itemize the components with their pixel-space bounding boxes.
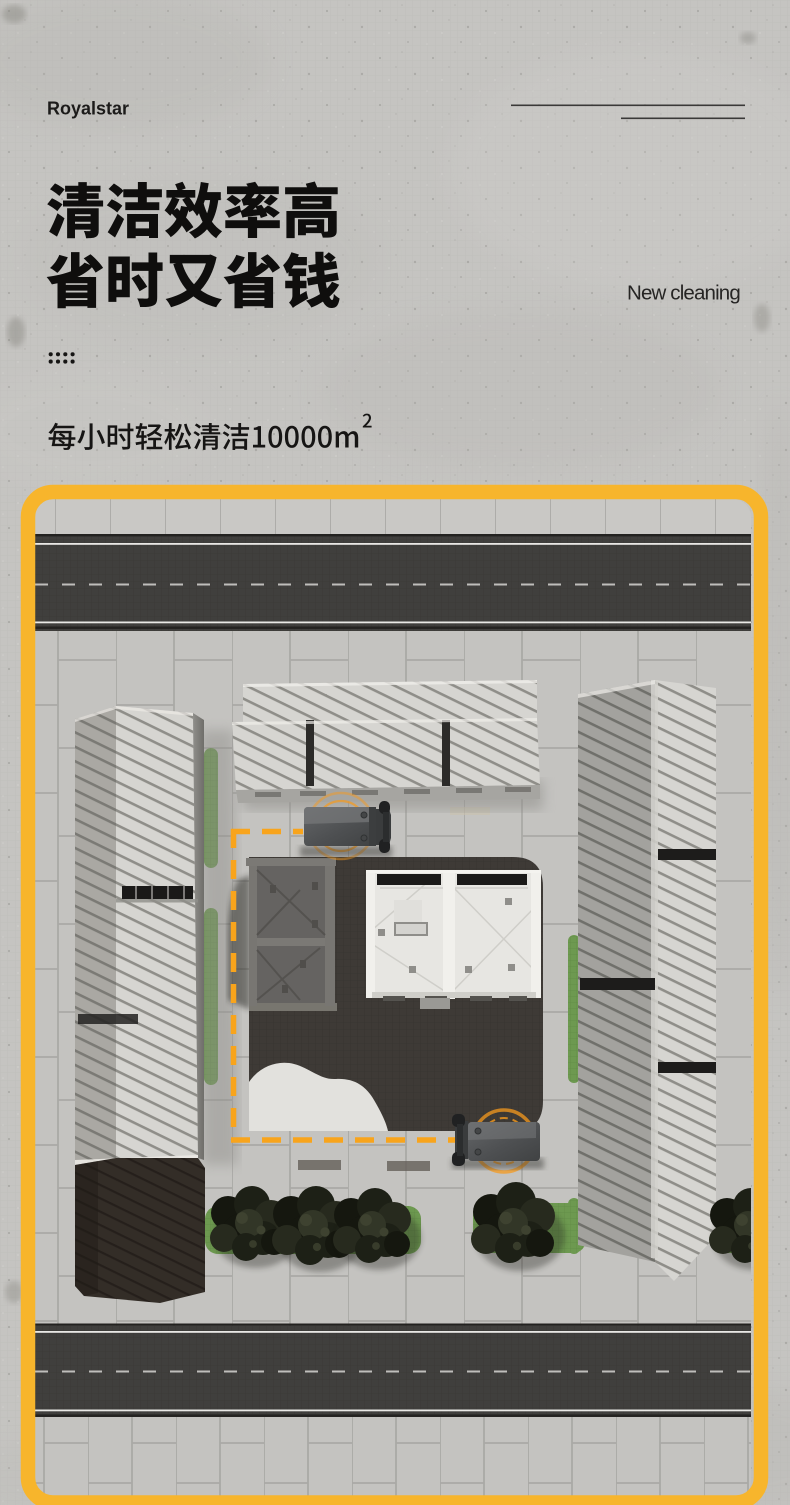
svg-text:New cleaning: New cleaning [627, 282, 740, 305]
svg-text:Royalstar: Royalstar [47, 99, 129, 119]
